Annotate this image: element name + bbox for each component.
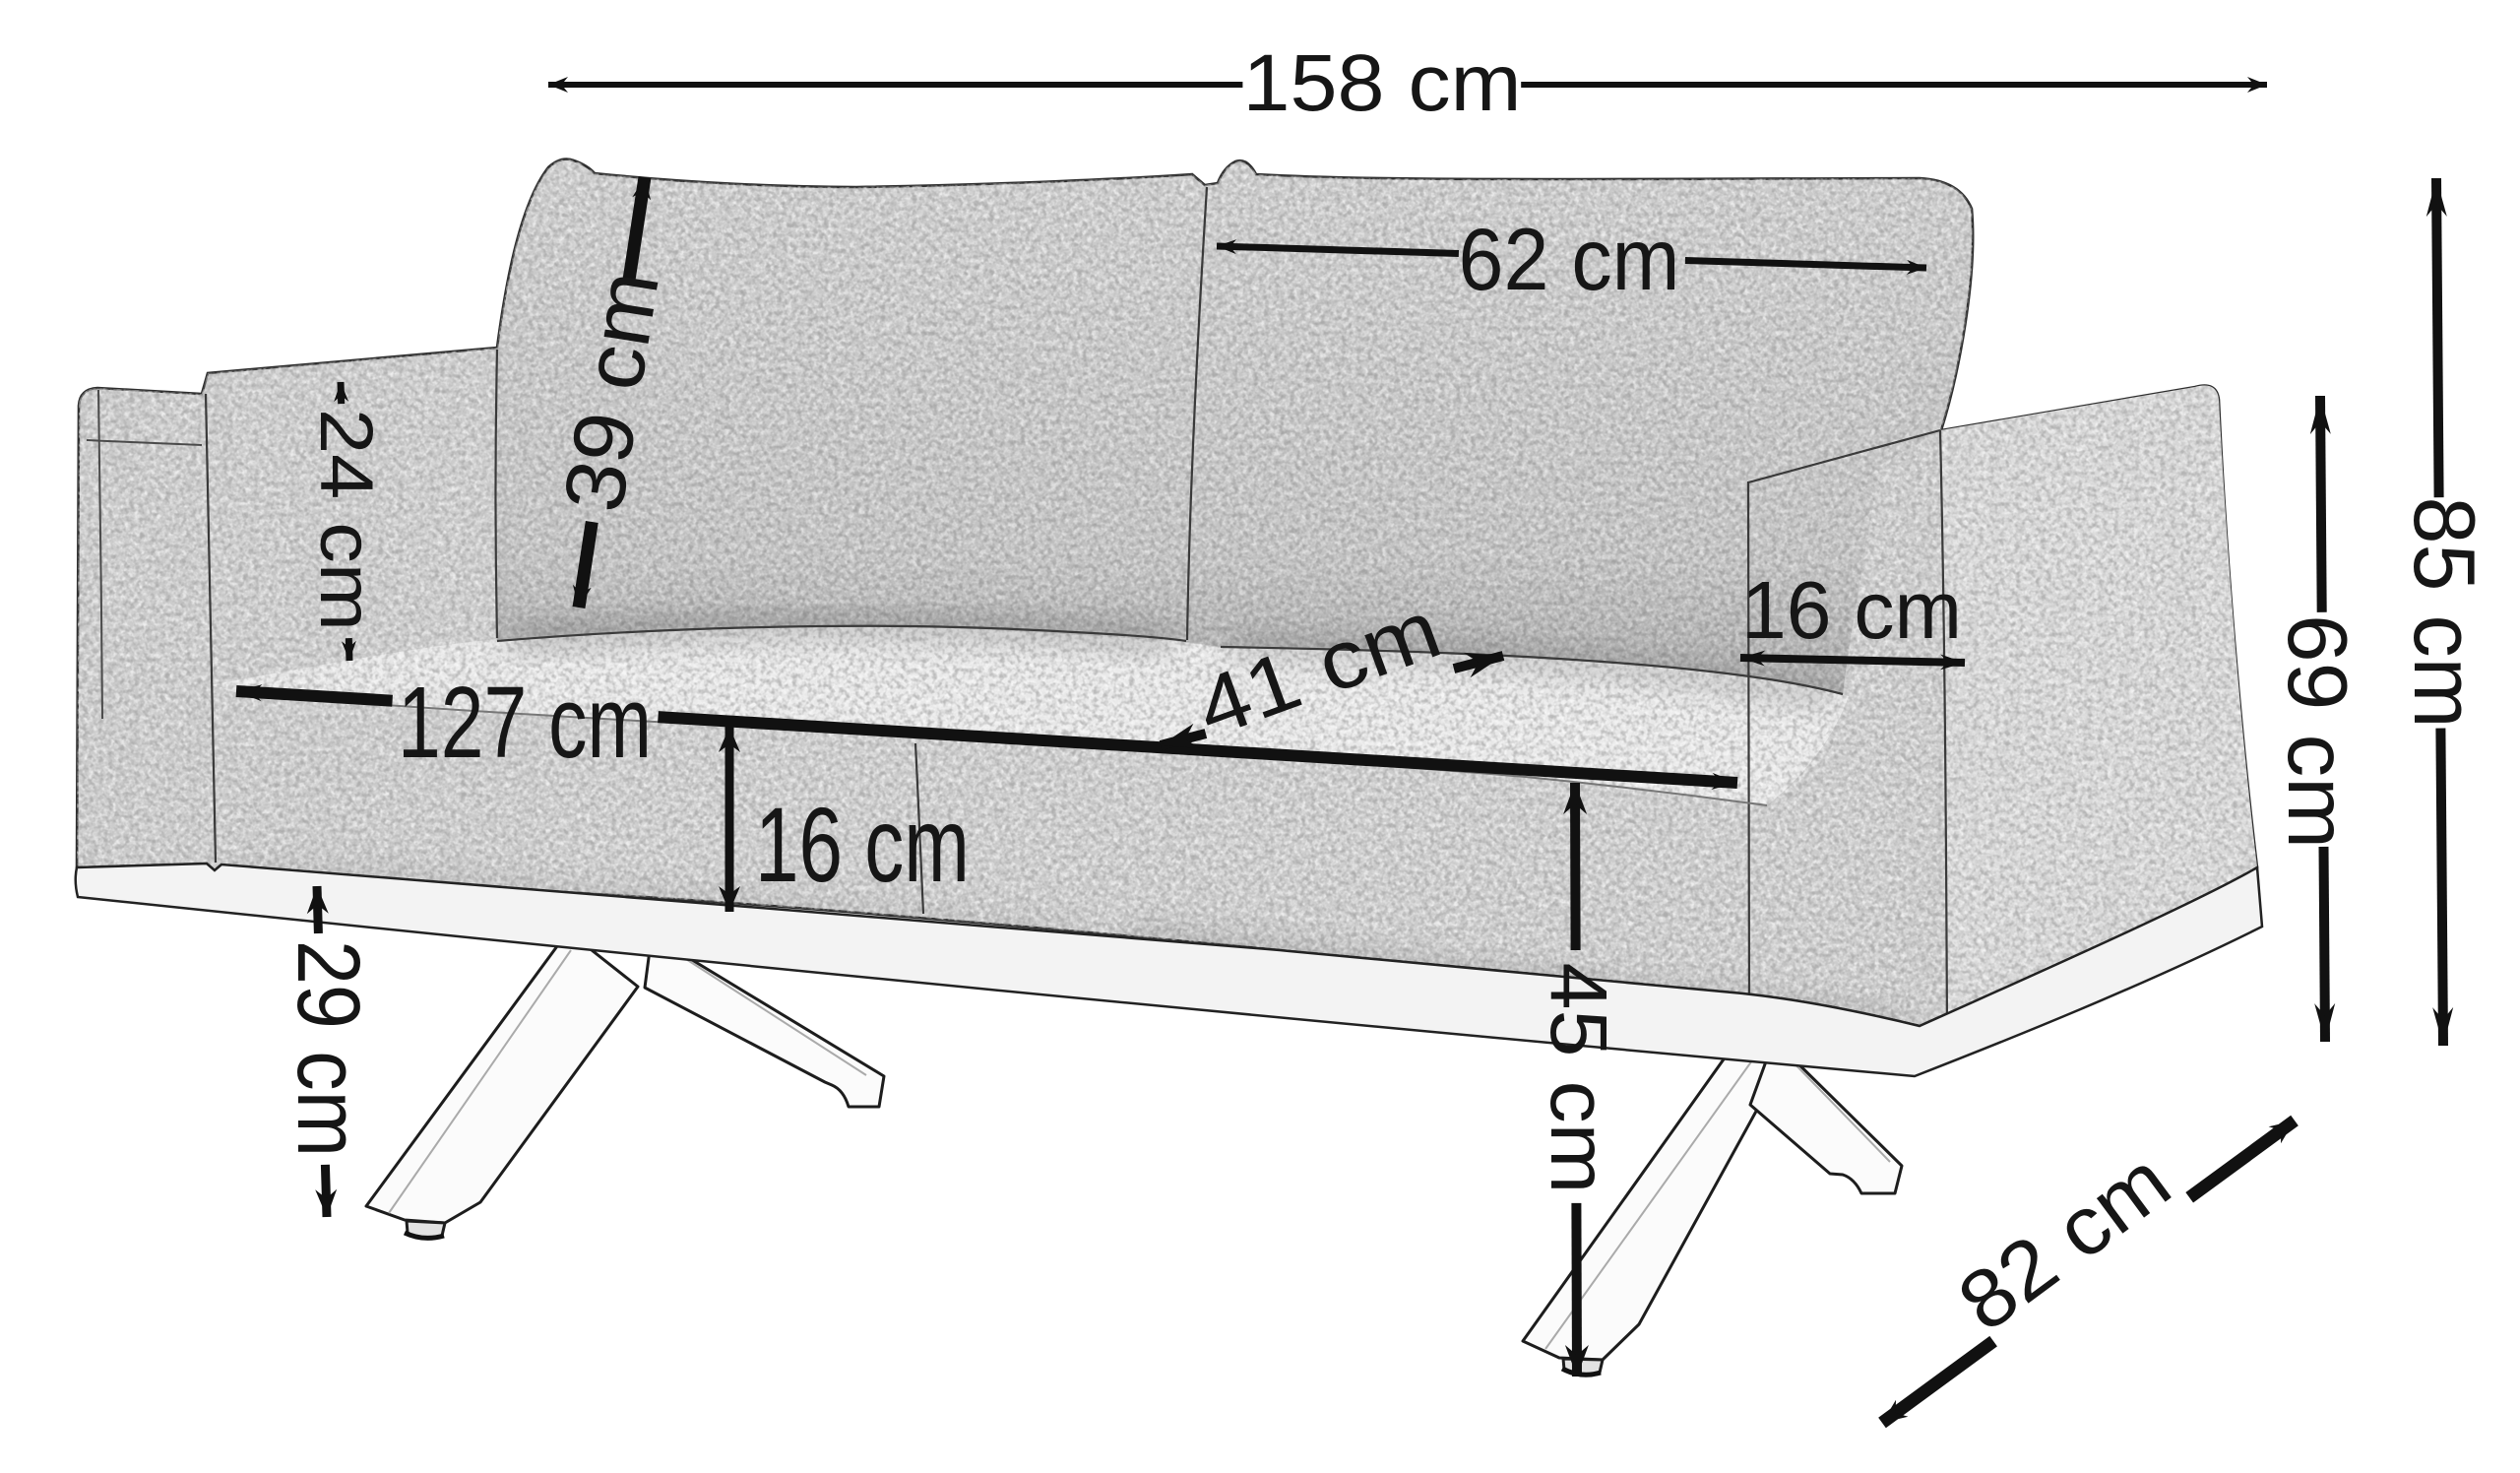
- svg-text:127 cm: 127 cm: [398, 666, 652, 779]
- svg-text:69 cm: 69 cm: [2270, 614, 2363, 849]
- svg-text:29 cm: 29 cm: [279, 940, 377, 1157]
- svg-text:82 cm: 82 cm: [1941, 1134, 2186, 1349]
- svg-text:62 cm: 62 cm: [1459, 210, 1680, 308]
- svg-text:16 cm: 16 cm: [1741, 564, 1962, 656]
- svg-text:24 cm: 24 cm: [304, 409, 388, 631]
- svg-text:158 cm: 158 cm: [1243, 38, 1522, 128]
- svg-text:85 cm: 85 cm: [2396, 497, 2493, 729]
- svg-text:16 cm: 16 cm: [755, 785, 970, 904]
- svg-text:45 cm: 45 cm: [1534, 963, 1623, 1194]
